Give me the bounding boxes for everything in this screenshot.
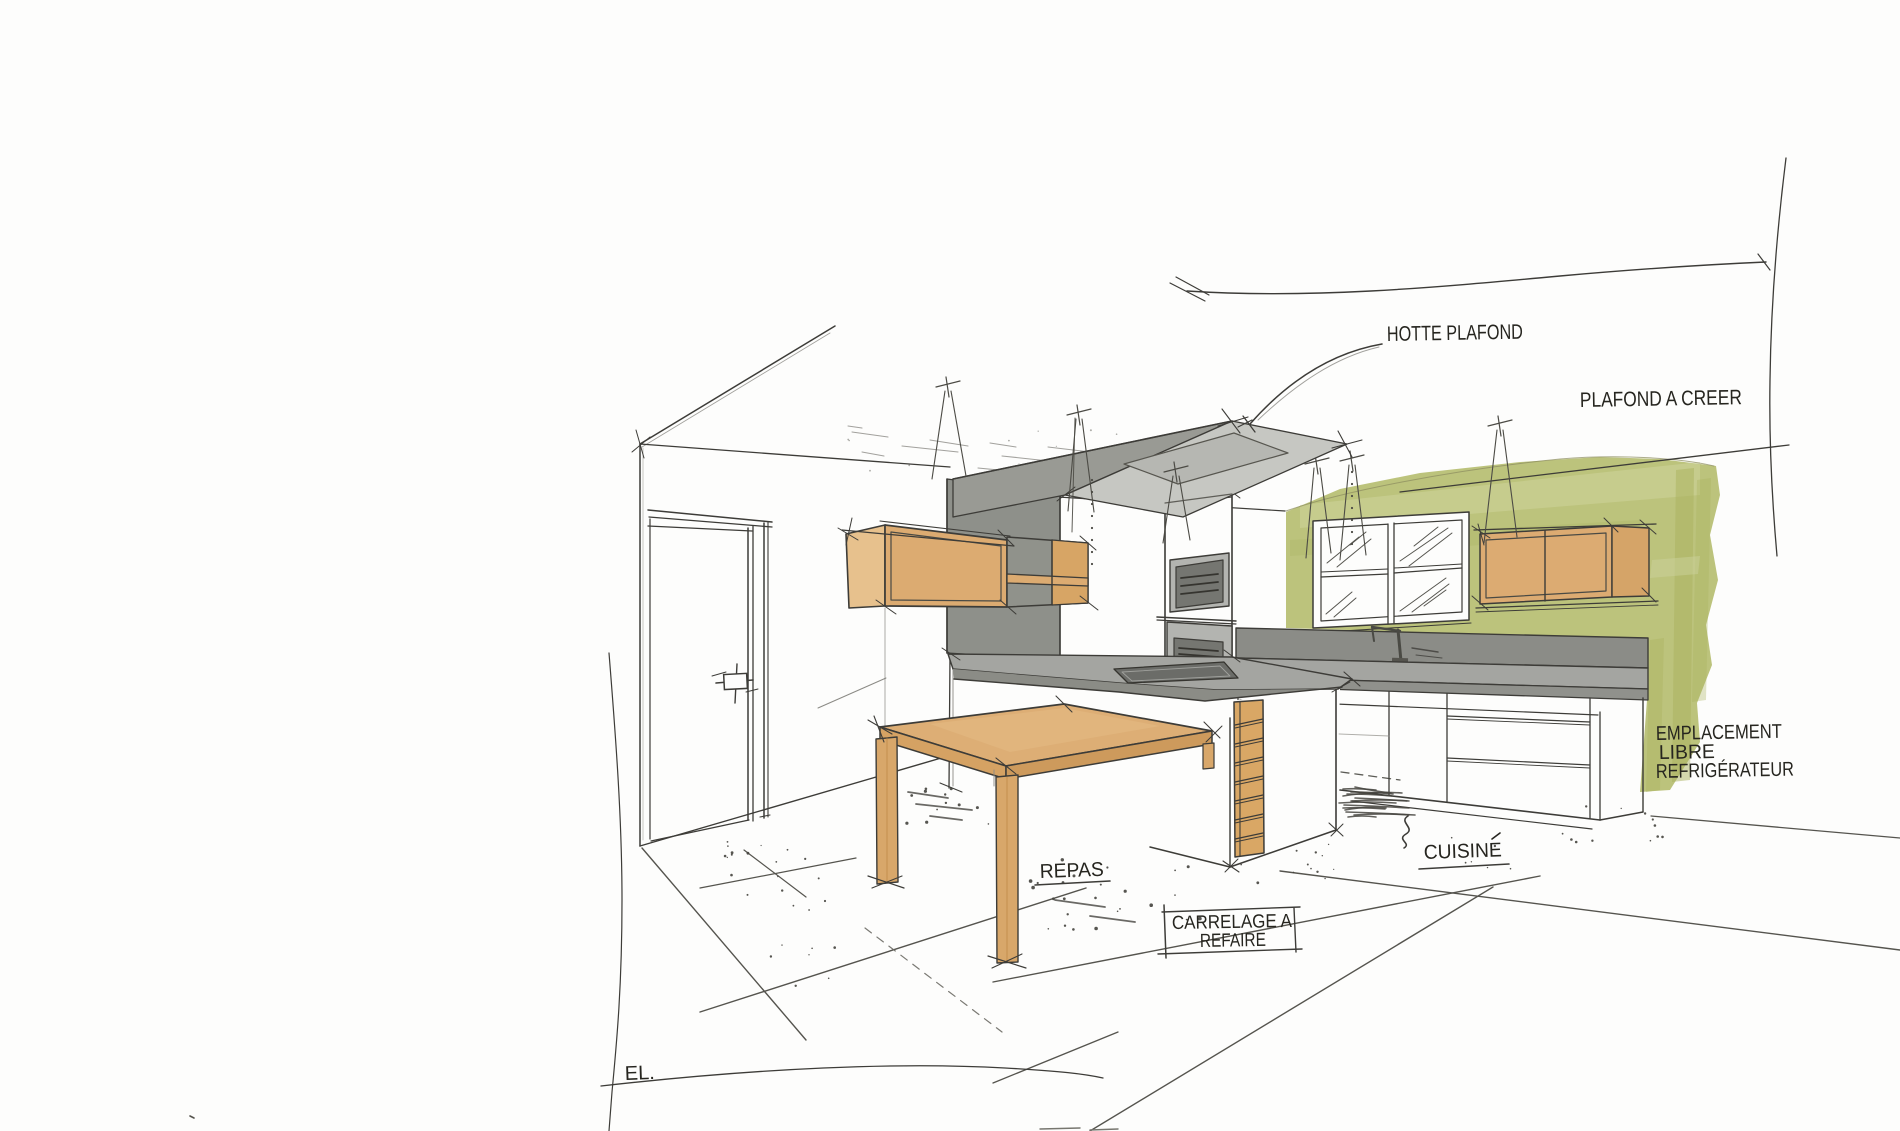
svg-text:HOTTE PLAFOND: HOTTE PLAFOND (1387, 321, 1523, 346)
svg-text:CUISINE: CUISINE (1423, 839, 1502, 864)
svg-text:EL.: EL. (624, 1062, 655, 1085)
svg-text:PLAFOND A CREER: PLAFOND A CREER (1580, 386, 1742, 412)
svg-text:REFRIGÉRATEUR: REFRIGÉRATEUR (1656, 758, 1794, 783)
svg-text:REFAIRE: REFAIRE (1200, 930, 1266, 952)
svg-text:REPAS: REPAS (1039, 859, 1104, 883)
